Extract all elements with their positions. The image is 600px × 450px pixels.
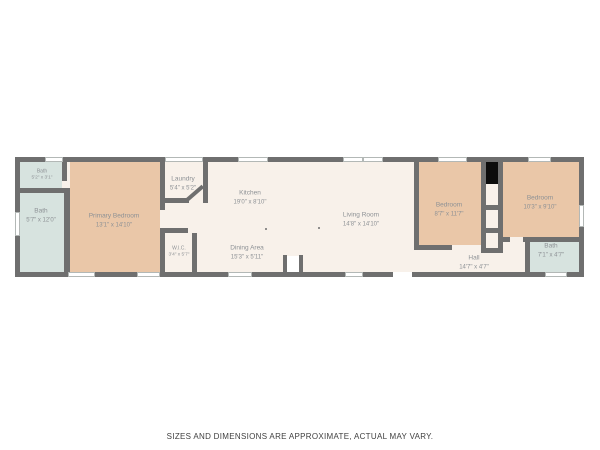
room-label-bath-left: Bath 5'7" x 12'0" (26, 208, 56, 225)
wall-bath-small-right (62, 162, 67, 181)
wall-wic-right (192, 233, 197, 272)
window-bottom-primary-1 (68, 272, 95, 277)
window-top-laundry (165, 157, 203, 162)
room-label-bedroom-right: Bedroom 10'3" x 9'10" (524, 195, 557, 212)
room-label-hall: Hall 14'7" x 4'7" (459, 255, 489, 272)
wall-living-right (414, 157, 419, 250)
room-label-bath-right: Bath 7'1" x 4'7" (538, 243, 564, 260)
window-right-bedroom (579, 205, 584, 227)
wall-closet-divider-1 (481, 205, 503, 210)
wall-bath-bedroom (64, 193, 70, 272)
utility-closet-black (484, 160, 499, 184)
room-fill-bath-left (20, 193, 64, 272)
window-bottom-dining (228, 272, 252, 277)
disclaimer-text: SIZES AND DIMENSIONS ARE APPROXIMATE, AC… (0, 432, 600, 441)
wall-primary-right-lower (160, 228, 165, 272)
window-bottom-living (345, 272, 363, 277)
window-bottom-primary-2 (137, 272, 160, 277)
door-gap-entry-alcove (287, 256, 299, 272)
wall-laundry-bottom (160, 198, 189, 203)
wall-bedroom-right-bottom (523, 237, 584, 242)
room-label-laundry: Laundry 5'4" x 5'2" (170, 176, 196, 193)
wall-laundry-right (203, 157, 208, 203)
wall-closet-bottom (481, 248, 503, 253)
window-top-bath-small (45, 157, 63, 162)
window-top-bedroom-right (528, 157, 551, 162)
window-top-bedroom-mid (438, 157, 467, 162)
door-gap-bottom-hall (393, 272, 412, 277)
room-label-dining: Dining Area 15'3" x 5'11" (230, 245, 264, 262)
wall-closet-divider-2 (481, 228, 503, 233)
wall-bedroom-right-bottom-stub (503, 237, 510, 242)
room-label-living: Living Room 14'8" x 14'10" (343, 212, 379, 229)
wall-bath-small-bottom (15, 188, 70, 193)
window-top-living-2 (363, 157, 383, 162)
wall-exterior-bottom (15, 272, 584, 277)
wall-wic-top (160, 228, 188, 233)
floor-plan-image: Bath 5'2" x 3'1" Bath 5'7" x 12'0" Prima… (0, 0, 600, 450)
wall-entry-alcove-right (299, 255, 303, 272)
window-top-kitchen (238, 157, 268, 162)
window-top-living-1 (343, 157, 363, 162)
kitchen-island-dot-1 (265, 228, 267, 230)
room-label-kitchen: Kitchen 19'0" x 8'10" (234, 190, 267, 207)
window-left-bath (15, 212, 20, 236)
room-label-bath-small: Bath 5'2" x 3'1" (32, 168, 53, 181)
wall-bedroom-mid-bottom (414, 245, 452, 250)
kitchen-island-dot-2 (318, 227, 320, 229)
room-label-bedroom-mid: Bedroom 8'7" x 11'7" (434, 202, 463, 219)
window-bottom-bath-right (545, 272, 567, 277)
room-label-wic: W.I.C. 3'4" x 5'7" (169, 245, 190, 258)
wall-bath-right-left (525, 242, 530, 272)
room-label-primary-bedroom: Primary Bedroom 13'1" x 14'10" (89, 213, 140, 230)
